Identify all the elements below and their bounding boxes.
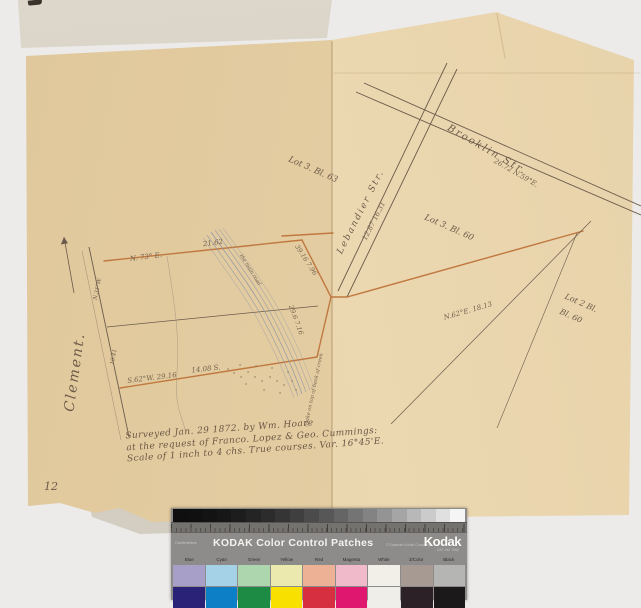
gray-step: [450, 509, 465, 522]
kodak-logo: Kodak: [424, 534, 461, 549]
map-label: S.62°W. 29.16: [127, 371, 177, 385]
gray-step: [407, 509, 422, 522]
map-label: 14.08 S.: [191, 364, 221, 375]
gray-step: [348, 509, 363, 522]
map-label: 10.41: [109, 349, 118, 366]
gray-step: [246, 509, 261, 522]
gray-step: [436, 509, 451, 522]
color-patch: [336, 587, 368, 608]
patch-label: 3/Color: [400, 557, 432, 565]
patch-label: Black: [433, 557, 465, 565]
patch-label: Cyan: [205, 557, 237, 565]
patch-label: Green: [238, 557, 270, 565]
gray-step: [290, 509, 305, 522]
patch-row-solid: [173, 587, 465, 608]
map-label: Stake on top of bank of creek: [303, 353, 324, 427]
map-label: 39.16 7.96: [293, 243, 319, 277]
scanned-map-page: Clement.Brooklin Str.26.72 N.59°E.Leband…: [0, 0, 641, 600]
color-patch: [238, 587, 270, 608]
map-label: Bl. 60: [558, 307, 583, 325]
map-label: 21.62: [203, 238, 224, 248]
grayscale-ramp: [173, 509, 465, 522]
patch-labels: BlueCyanGreenYellowRedMagentaWhite3/Colo…: [173, 557, 465, 565]
color-patch: [173, 587, 205, 608]
map-label: Lot 3. Bl. 63: [287, 155, 339, 186]
color-patch: [368, 565, 400, 586]
gray-step: [392, 509, 407, 522]
strip-title-band: Centimetres KODAK Color Control Patches …: [171, 532, 467, 557]
patch-row-pastel: [173, 565, 465, 586]
gray-step: [421, 509, 436, 522]
kodak-color-control-strip: Centimetres KODAK Color Control Patches …: [171, 508, 467, 600]
gray-step: [363, 509, 378, 522]
color-patch: [271, 565, 303, 586]
gray-step: [173, 509, 188, 522]
color-patch: [401, 587, 433, 608]
strip-title: KODAK Color Control Patches: [213, 537, 373, 549]
color-patch: [434, 587, 466, 608]
patch-label: Magenta: [335, 557, 367, 565]
kodak-catalog-number: CAT 152 7654: [437, 548, 459, 552]
color-patch: [303, 587, 335, 608]
gray-step: [377, 509, 392, 522]
color-patch: [206, 565, 238, 586]
color-patch: [434, 565, 466, 586]
gray-step: [188, 509, 203, 522]
gray-step: [231, 509, 246, 522]
gray-step: [334, 509, 349, 522]
patch-label: White: [368, 557, 400, 565]
color-patch: [368, 587, 400, 608]
patch-label: Yellow: [270, 557, 302, 565]
map-label: Clement.: [62, 331, 89, 413]
page-number: 12: [44, 480, 58, 493]
color-patch: [206, 587, 238, 608]
ruler-units-label: Centimetres: [175, 540, 197, 545]
map-label: Lot 3. Bl. 60: [423, 213, 475, 244]
gray-step: [304, 509, 319, 522]
patch-label: Red: [303, 557, 335, 565]
gray-step: [217, 509, 232, 522]
map-label: N. 73° E.: [130, 251, 163, 263]
map-label: N.31°W.: [93, 277, 104, 300]
color-patch: [173, 565, 205, 586]
gray-step: [319, 509, 334, 522]
gray-step: [261, 509, 276, 522]
color-patch: [401, 565, 433, 586]
color-patch: [238, 565, 270, 586]
patch-label: Blue: [173, 557, 205, 565]
color-patch: [303, 565, 335, 586]
map-label: 29.6 7.16: [287, 304, 305, 336]
color-patch: [336, 565, 368, 586]
map-label: N.62°E. 18.13: [443, 300, 493, 321]
color-patch: [271, 587, 303, 608]
map-label: the main road: [238, 253, 262, 286]
gray-step: [275, 509, 290, 522]
gray-step: [202, 509, 217, 522]
